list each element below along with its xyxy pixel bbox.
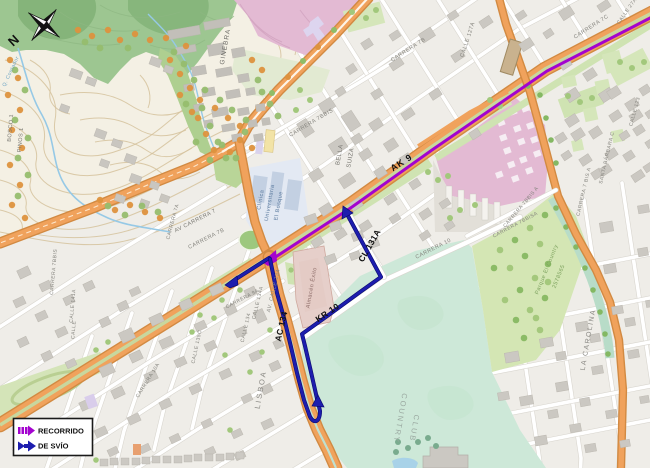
svg-text:DE SVÍO: DE SVÍO	[38, 442, 69, 451]
svg-text:RECORRIDO: RECORRIDO	[38, 427, 84, 436]
